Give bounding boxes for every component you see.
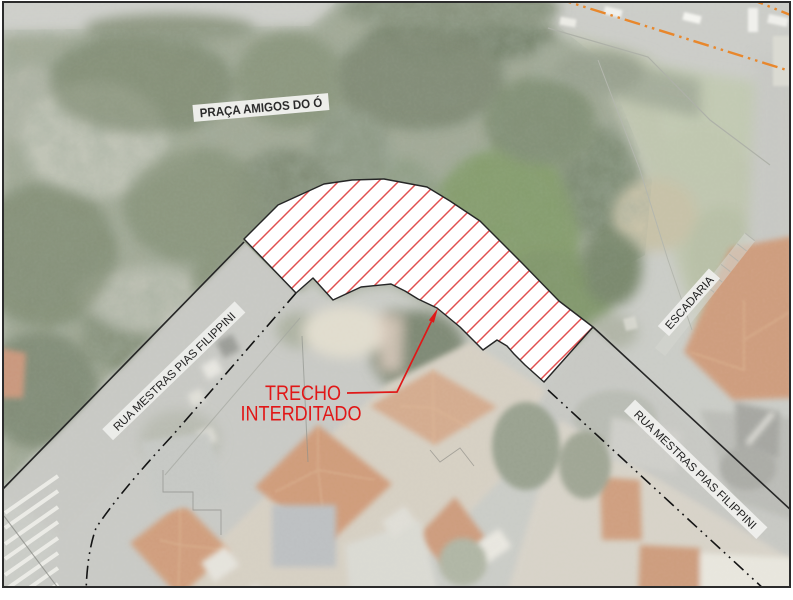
svg-text:INTERDITADO: INTERDITADO (241, 402, 362, 426)
